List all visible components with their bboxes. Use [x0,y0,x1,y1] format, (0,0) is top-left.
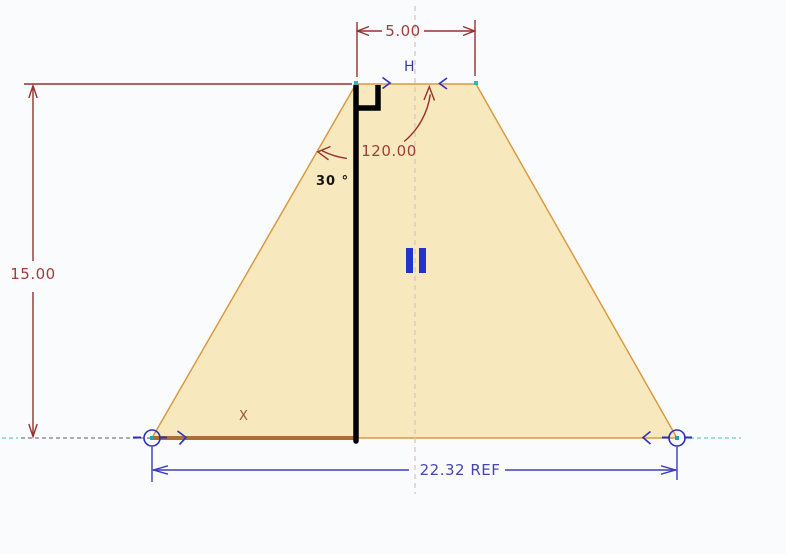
cad-sketch-viewport: 5.00 15.00 120.00 30 ° 22.32 REF H X [0,0,786,554]
vertex-point-icon [675,436,679,440]
vertex-point-icon [150,436,154,440]
dim-text-angle[interactable]: 120.00 [360,143,418,159]
dim-text-height[interactable]: 15.00 [7,266,59,282]
parallel-bar [406,248,413,273]
point-label-h: H [404,60,415,75]
axis-label-x: X [239,410,248,424]
vertex-point-icon[interactable] [354,81,358,85]
dim-text-top-width[interactable]: 5.00 [381,23,425,39]
dim-text-angle-note[interactable]: 30 ° [316,175,349,189]
vertex-point-icon[interactable] [474,81,478,85]
sketch-canvas[interactable] [0,0,786,554]
dim-text-base-width-ref[interactable]: 22.32 REF [414,462,506,478]
parallel-bar [419,248,426,273]
